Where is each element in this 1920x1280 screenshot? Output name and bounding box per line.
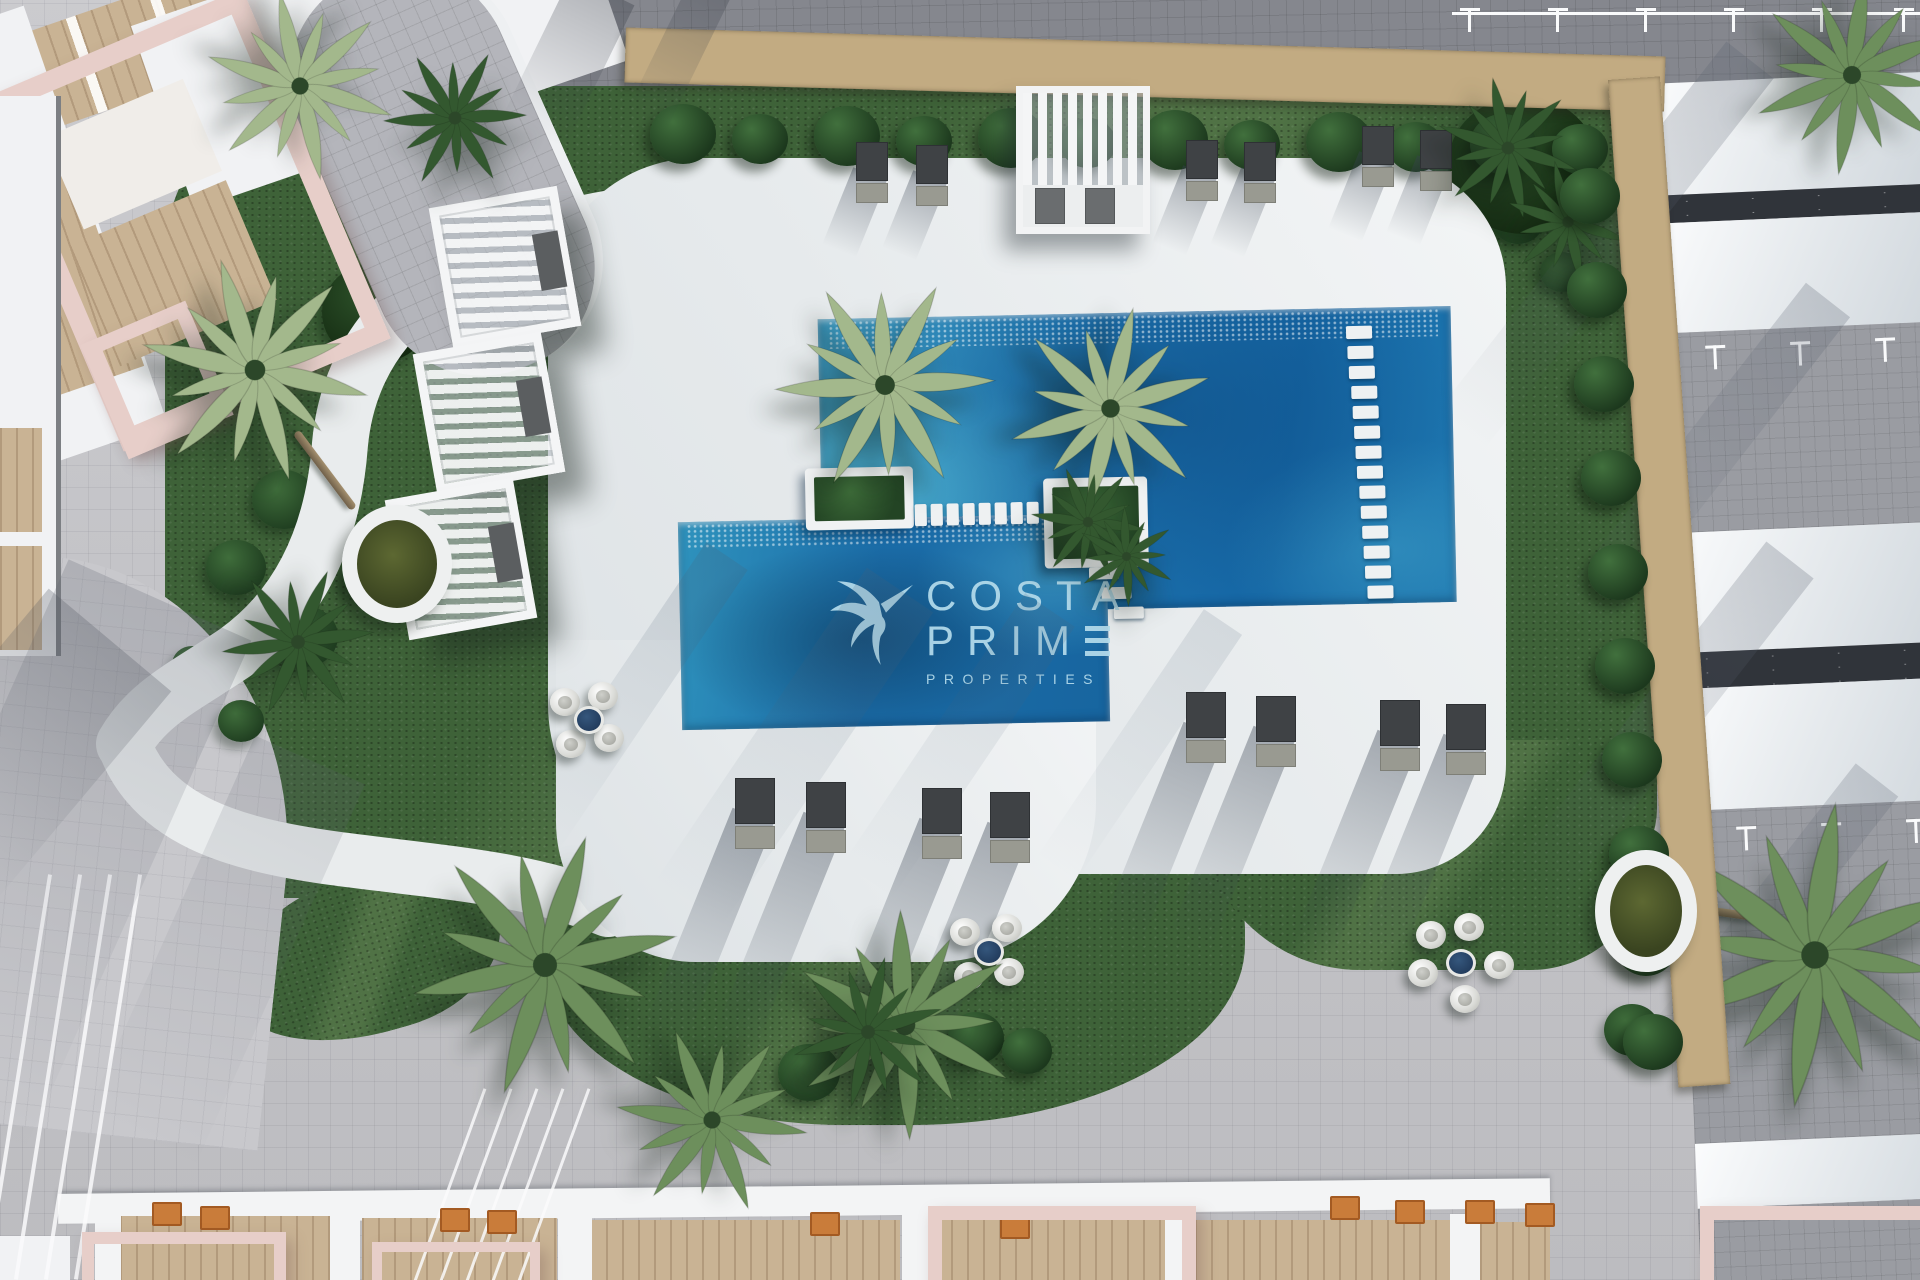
terrace-chair xyxy=(487,1210,517,1234)
pool-bench-step xyxy=(1347,346,1373,360)
palm-canopy-icon xyxy=(770,270,1000,500)
hedge-bush xyxy=(732,114,788,164)
lounger-backrest xyxy=(916,145,948,184)
terrace-chair xyxy=(1330,1196,1360,1220)
stepping-stone xyxy=(1011,502,1023,524)
pod-chair xyxy=(1416,921,1446,949)
garden-cabana xyxy=(413,332,566,494)
pool-bench-step xyxy=(1355,445,1381,459)
sun-lounger xyxy=(916,145,946,209)
pool-bench-step xyxy=(1359,485,1385,499)
bottom-terrace xyxy=(590,1220,900,1280)
lounger-seat xyxy=(1446,752,1486,775)
sun-lounger xyxy=(1380,700,1418,776)
sun-lounger xyxy=(990,792,1028,868)
sun-lounger xyxy=(1186,692,1224,768)
lounger-seat xyxy=(1186,740,1226,763)
lounger-seat xyxy=(1256,744,1296,767)
stepping-stone xyxy=(963,503,975,525)
lounger-backrest xyxy=(990,792,1030,838)
pod-table xyxy=(574,706,604,734)
pool-bench-step xyxy=(1354,425,1380,439)
sun-lounger xyxy=(1244,142,1274,206)
pool-bench-step xyxy=(1351,386,1377,400)
stepping-stone xyxy=(931,504,943,526)
hedge-bush xyxy=(1567,262,1627,318)
lounger-seat xyxy=(916,186,948,206)
pod-table xyxy=(1446,949,1476,977)
pool-bench-step xyxy=(1361,505,1387,519)
aerial-render-scene: COSTA PRIM PROPERTIES xyxy=(0,0,1920,1280)
garden-bush xyxy=(172,646,212,683)
lounger-seat xyxy=(1380,748,1420,771)
palm-tree xyxy=(770,270,1000,500)
pool-pergola xyxy=(1016,86,1150,234)
pool-bench-step xyxy=(1365,565,1391,579)
lounger-backrest xyxy=(856,142,888,181)
railing-post xyxy=(1705,345,1726,370)
lounger-backrest xyxy=(806,782,846,828)
hedge-bush xyxy=(1602,732,1662,788)
sun-lounger xyxy=(735,778,773,854)
hedge-bush xyxy=(1588,544,1648,600)
terrace-chair xyxy=(810,1212,840,1236)
pink-pergola-frame-bottom xyxy=(82,1232,286,1280)
stepping-stone xyxy=(995,502,1007,524)
lounger-backrest xyxy=(1362,126,1394,165)
pool-bench-step xyxy=(1362,525,1388,539)
stylized-e-glyph xyxy=(1085,626,1110,656)
pink-pergola-frame-bottom xyxy=(372,1242,540,1280)
lounger-seat xyxy=(990,840,1030,863)
lounger-seat xyxy=(1186,181,1218,201)
pool-bench-step xyxy=(1357,465,1383,479)
stepping-stone xyxy=(979,503,991,525)
pool-bench-step xyxy=(1349,366,1375,380)
pod-chair xyxy=(1484,951,1514,979)
terrace-chair xyxy=(200,1206,230,1230)
pool-bench-step xyxy=(1367,585,1393,599)
terrace-chair xyxy=(1525,1203,1555,1227)
pod-chair xyxy=(1450,985,1480,1013)
terrace-pier xyxy=(330,1212,360,1280)
bottom-terrace xyxy=(1195,1220,1450,1280)
pool-bench-step xyxy=(1353,406,1379,420)
pink-pergola-frame-bottom xyxy=(928,1206,1196,1280)
lounger-seat xyxy=(735,826,775,849)
hedge-bush xyxy=(1560,168,1620,224)
terrace-pier xyxy=(558,1214,592,1280)
sun-lounger xyxy=(1362,126,1392,190)
sun-lounger xyxy=(1256,696,1294,772)
hedge-bush xyxy=(1574,356,1634,412)
sun-lounger xyxy=(856,142,886,206)
hedge-bush xyxy=(650,104,716,164)
stepping-stone xyxy=(947,503,959,525)
lounger-seat xyxy=(806,830,846,853)
stepping-stone xyxy=(915,504,927,526)
lounger-backrest xyxy=(1446,704,1486,750)
pool-bench-step xyxy=(1364,545,1390,559)
round-planter-right xyxy=(1595,850,1697,972)
roof-band xyxy=(1668,520,1920,653)
pergola-seat xyxy=(1035,188,1065,224)
lounger-backrest xyxy=(735,778,775,824)
lounger-seat xyxy=(1362,167,1394,187)
bottom-terrace xyxy=(1480,1222,1550,1280)
hedge-bush xyxy=(1581,450,1641,506)
terrace-chair xyxy=(152,1202,182,1226)
bottom-left-corner-structure xyxy=(0,1236,70,1280)
pergola-seat xyxy=(1085,188,1115,224)
hedge-bush xyxy=(1623,1014,1683,1070)
lounger-seat xyxy=(856,183,888,203)
logo-line3: PROPERTIES xyxy=(926,671,1146,687)
lounger-backrest xyxy=(1186,692,1226,738)
sun-lounger xyxy=(1186,140,1216,204)
railing-post xyxy=(1548,8,1568,32)
terrace-chair xyxy=(1465,1200,1495,1224)
railing-post xyxy=(1790,341,1811,366)
sun-lounger xyxy=(1446,704,1484,780)
pool-bench-step xyxy=(1346,326,1372,340)
sun-lounger xyxy=(806,782,844,858)
lounger-backrest xyxy=(1380,700,1420,746)
terrace-chair xyxy=(440,1208,470,1232)
pod-chair xyxy=(1408,959,1438,987)
lounger-backrest xyxy=(1186,140,1218,179)
left-edge-terrace-1 xyxy=(0,428,42,532)
garden-cabana xyxy=(429,186,582,348)
sun-lounger xyxy=(922,788,960,864)
railing-post xyxy=(1460,8,1480,32)
terrace-chair xyxy=(1395,1200,1425,1224)
lounger-backrest xyxy=(922,788,962,834)
lounger-seat xyxy=(1244,183,1276,203)
railing-post xyxy=(1875,337,1896,362)
left-edge-shadow-line xyxy=(56,96,61,656)
lounger-seat xyxy=(922,836,962,859)
lounger-backrest xyxy=(1244,142,1276,181)
pod-chair xyxy=(1454,913,1484,941)
hummingbird-logo-icon xyxy=(826,576,918,672)
hedge-bush xyxy=(1595,638,1655,694)
pink-pergola-frame-bottom xyxy=(1700,1206,1920,1280)
pod-chair xyxy=(992,914,1022,942)
left-edge-terrace-2 xyxy=(0,546,42,650)
pod-chair xyxy=(556,730,586,758)
lounger-backrest xyxy=(1256,696,1296,742)
roof-band xyxy=(1655,211,1920,334)
